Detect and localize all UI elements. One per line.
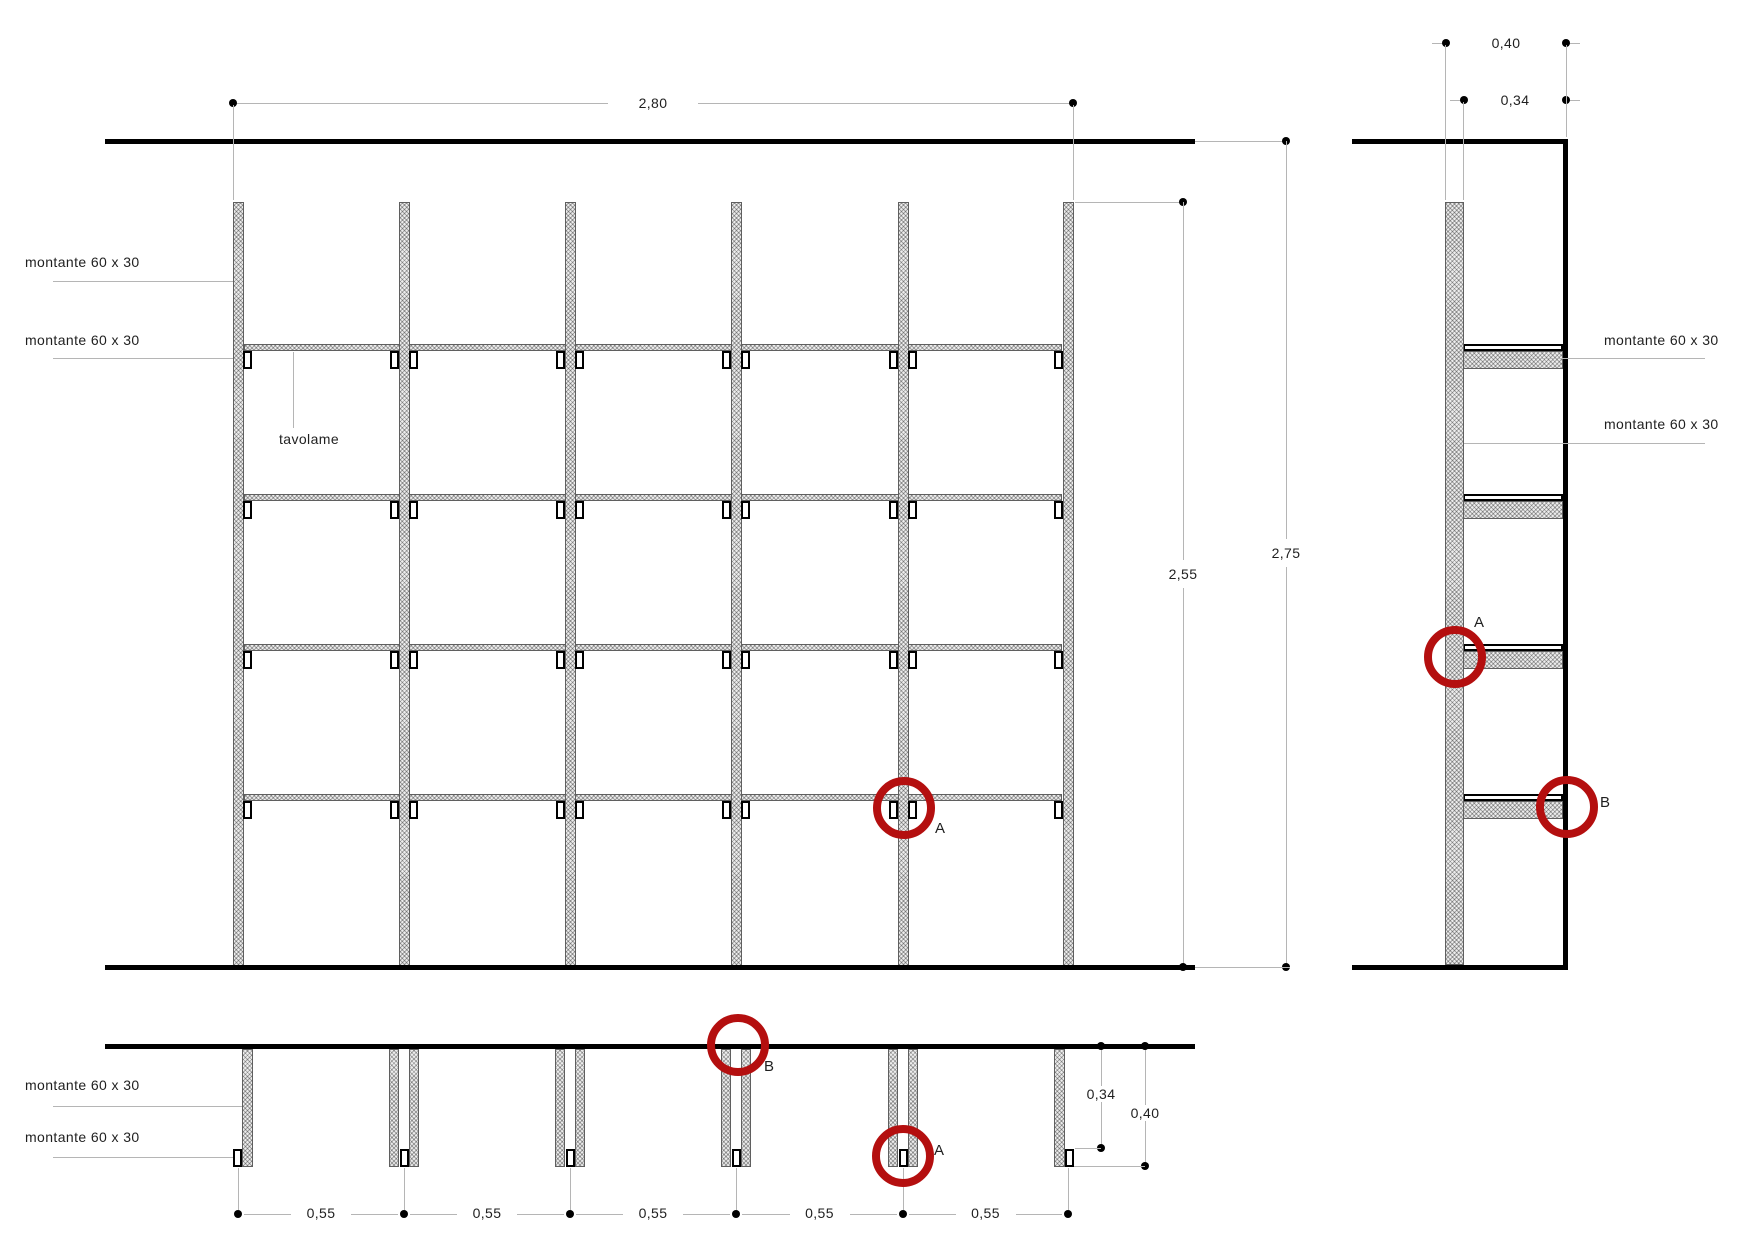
plan-bay-dimension: 0,55 xyxy=(305,1206,338,1220)
shelf-clip xyxy=(722,801,731,819)
plan-post xyxy=(389,1049,399,1167)
side-detail-circle-a xyxy=(1424,626,1486,688)
front-post xyxy=(399,202,410,966)
front-shelf xyxy=(244,344,1062,351)
front-shelf xyxy=(244,644,1062,651)
dim-line xyxy=(1101,1102,1102,1148)
front-posts-height-dimension: 2,55 xyxy=(1167,567,1200,581)
dim-line xyxy=(1101,1048,1102,1086)
shelf-clip xyxy=(409,651,418,669)
dim-line xyxy=(909,1214,956,1215)
front-post xyxy=(898,202,909,966)
dim-line xyxy=(1075,202,1183,203)
front-ceiling-line xyxy=(105,139,1195,144)
shelf-clip xyxy=(741,351,750,369)
shelf-clip xyxy=(390,801,399,819)
plan-wall-line xyxy=(105,1044,1195,1049)
dim-dot xyxy=(1460,96,1468,104)
front-post xyxy=(565,202,576,966)
front-detail-circle-a xyxy=(873,777,935,839)
side-shelf-board xyxy=(1463,494,1563,501)
shelf-clip xyxy=(556,651,565,669)
plan-witness-line xyxy=(1068,1168,1069,1210)
front-floor-line xyxy=(105,965,1195,970)
dim-line xyxy=(1145,1048,1146,1105)
front-post xyxy=(1063,202,1074,966)
shelf-clip xyxy=(556,501,565,519)
shelf-clip xyxy=(575,801,584,819)
plan-depth-total-dimension: 0,40 xyxy=(1129,1106,1162,1120)
dim-line xyxy=(1183,588,1184,965)
dim-line xyxy=(1195,141,1286,142)
shelf-clip xyxy=(722,651,731,669)
leader-line xyxy=(53,1157,233,1158)
plan-witness-line xyxy=(736,1168,737,1210)
dim-line xyxy=(233,103,608,104)
dim-line xyxy=(517,1214,564,1215)
shelf-clip xyxy=(908,651,917,669)
front-label-montante-lower: montante 60 x 30 xyxy=(25,333,140,348)
dim-line xyxy=(1183,202,1184,560)
shelf-clip xyxy=(575,351,584,369)
plan-clip xyxy=(1065,1149,1074,1167)
shelf-clip xyxy=(243,351,252,369)
dim-line xyxy=(1286,141,1287,539)
leader-line xyxy=(1510,358,1705,359)
plan-bay-dimension: 0,55 xyxy=(471,1206,504,1220)
side-floor-line xyxy=(1352,965,1568,970)
shelf-clip xyxy=(575,651,584,669)
witness-line xyxy=(1445,45,1446,200)
dim-line xyxy=(1075,1148,1101,1149)
shelf-clip xyxy=(556,351,565,369)
side-detail-label-a: A xyxy=(1474,614,1484,631)
plan-bay-dimension: 0,55 xyxy=(969,1206,1002,1220)
shelf-clip xyxy=(908,501,917,519)
dim-line xyxy=(698,103,1073,104)
leader-line xyxy=(1464,443,1705,444)
side-depth-total-dimension: 0,40 xyxy=(1490,36,1523,50)
shelf-clip xyxy=(243,801,252,819)
plan-witness-line xyxy=(238,1168,239,1210)
shelf-clip xyxy=(390,351,399,369)
side-ceiling-line xyxy=(1352,139,1568,144)
shelf-clip xyxy=(908,351,917,369)
shelf-clip xyxy=(889,651,898,669)
dim-line xyxy=(1016,1214,1063,1215)
plan-label-montante-upper: montante 60 x 30 xyxy=(25,1078,140,1093)
front-detail-label-a: A xyxy=(935,820,945,837)
dim-line xyxy=(683,1214,730,1215)
dim-line xyxy=(1195,967,1290,968)
dim-dot xyxy=(400,1210,408,1218)
witness-line xyxy=(233,105,234,200)
dim-dot xyxy=(1442,39,1450,47)
plan-clip xyxy=(566,1149,575,1167)
side-label-montante-lower: montante 60 x 30 xyxy=(1604,417,1719,432)
plan-post xyxy=(242,1049,253,1167)
dim-dot xyxy=(1179,963,1187,971)
side-depth-shelf-dimension: 0,34 xyxy=(1499,93,1532,107)
side-label-montante-upper: montante 60 x 30 xyxy=(1604,333,1719,348)
plan-post xyxy=(575,1049,585,1167)
generated-geometry: 0,550,550,550,550,55 xyxy=(0,0,1754,1240)
dim-line xyxy=(850,1214,898,1215)
shelf-clip xyxy=(409,351,418,369)
front-shelf xyxy=(244,794,1062,801)
dim-dot xyxy=(566,1210,574,1218)
side-detail-circle-b xyxy=(1536,776,1598,838)
plan-clip xyxy=(732,1149,741,1167)
front-label-tavolame: tavolame xyxy=(279,432,339,447)
plan-detail-circle-a xyxy=(872,1125,934,1187)
plan-post xyxy=(1054,1049,1065,1167)
shelf-clip xyxy=(1054,351,1063,369)
shelf-clip xyxy=(575,501,584,519)
front-width-dimension: 2,80 xyxy=(637,96,670,110)
dim-dot xyxy=(234,1210,242,1218)
leader-line xyxy=(53,1106,242,1107)
dim-dot xyxy=(1141,1042,1149,1050)
plan-bay-dimension: 0,55 xyxy=(637,1206,670,1220)
plan-witness-line xyxy=(404,1168,405,1210)
shelf-clip xyxy=(390,501,399,519)
plan-depth-shelf-dimension: 0,34 xyxy=(1085,1087,1118,1101)
front-total-height-dimension: 2,75 xyxy=(1270,546,1303,560)
dim-dot xyxy=(899,1210,907,1218)
shelf-clip xyxy=(409,501,418,519)
shelf-clip xyxy=(741,651,750,669)
front-shelf xyxy=(244,494,1062,501)
shelf-clip xyxy=(889,351,898,369)
shelf-clip xyxy=(556,801,565,819)
plan-clip xyxy=(400,1149,409,1167)
shelf-clip xyxy=(1054,801,1063,819)
technical-drawing-canvas: 0,550,550,550,550,55 2,80 2,55 2,75 mont… xyxy=(0,0,1754,1240)
plan-detail-label-b: B xyxy=(764,1058,774,1075)
witness-line xyxy=(1566,45,1567,137)
dim-line xyxy=(1074,1166,1145,1167)
leader-line xyxy=(53,281,233,282)
plan-witness-line xyxy=(570,1168,571,1210)
witness-line xyxy=(1073,105,1074,200)
plan-detail-circle-b xyxy=(707,1014,769,1076)
shelf-clip xyxy=(243,651,252,669)
shelf-clip xyxy=(1054,501,1063,519)
front-post xyxy=(731,202,742,966)
side-detail-label-b: B xyxy=(1600,794,1610,811)
witness-line xyxy=(1463,102,1464,200)
shelf-clip xyxy=(390,651,399,669)
plan-clip xyxy=(233,1149,242,1167)
shelf-clip xyxy=(243,501,252,519)
shelf-clip xyxy=(722,501,731,519)
shelf-clip xyxy=(409,801,418,819)
plan-post xyxy=(555,1049,565,1167)
shelf-clip xyxy=(889,501,898,519)
dim-dot xyxy=(732,1210,740,1218)
front-label-montante-upper: montante 60 x 30 xyxy=(25,255,140,270)
plan-post xyxy=(409,1049,419,1167)
shelf-clip xyxy=(1054,651,1063,669)
plan-detail-label-a: A xyxy=(934,1142,944,1159)
dim-dot xyxy=(1064,1210,1072,1218)
dim-line xyxy=(244,1214,291,1215)
shelf-clip xyxy=(741,501,750,519)
shelf-clip xyxy=(722,351,731,369)
dim-line xyxy=(1145,1121,1146,1166)
side-wall-line xyxy=(1563,139,1568,970)
dim-line xyxy=(742,1214,790,1215)
leader-line xyxy=(53,358,233,359)
shelf-clip xyxy=(741,801,750,819)
front-post xyxy=(233,202,244,966)
dim-line xyxy=(576,1214,623,1215)
side-post xyxy=(1445,202,1464,965)
plan-bay-dimension: 0,55 xyxy=(803,1206,836,1220)
dim-dot xyxy=(1097,1042,1105,1050)
leader-line xyxy=(293,352,294,428)
dim-line xyxy=(410,1214,457,1215)
dim-line xyxy=(1286,567,1287,965)
dim-line xyxy=(351,1214,398,1215)
plan-label-montante-lower: montante 60 x 30 xyxy=(25,1130,140,1145)
side-shelf-board xyxy=(1463,344,1563,351)
